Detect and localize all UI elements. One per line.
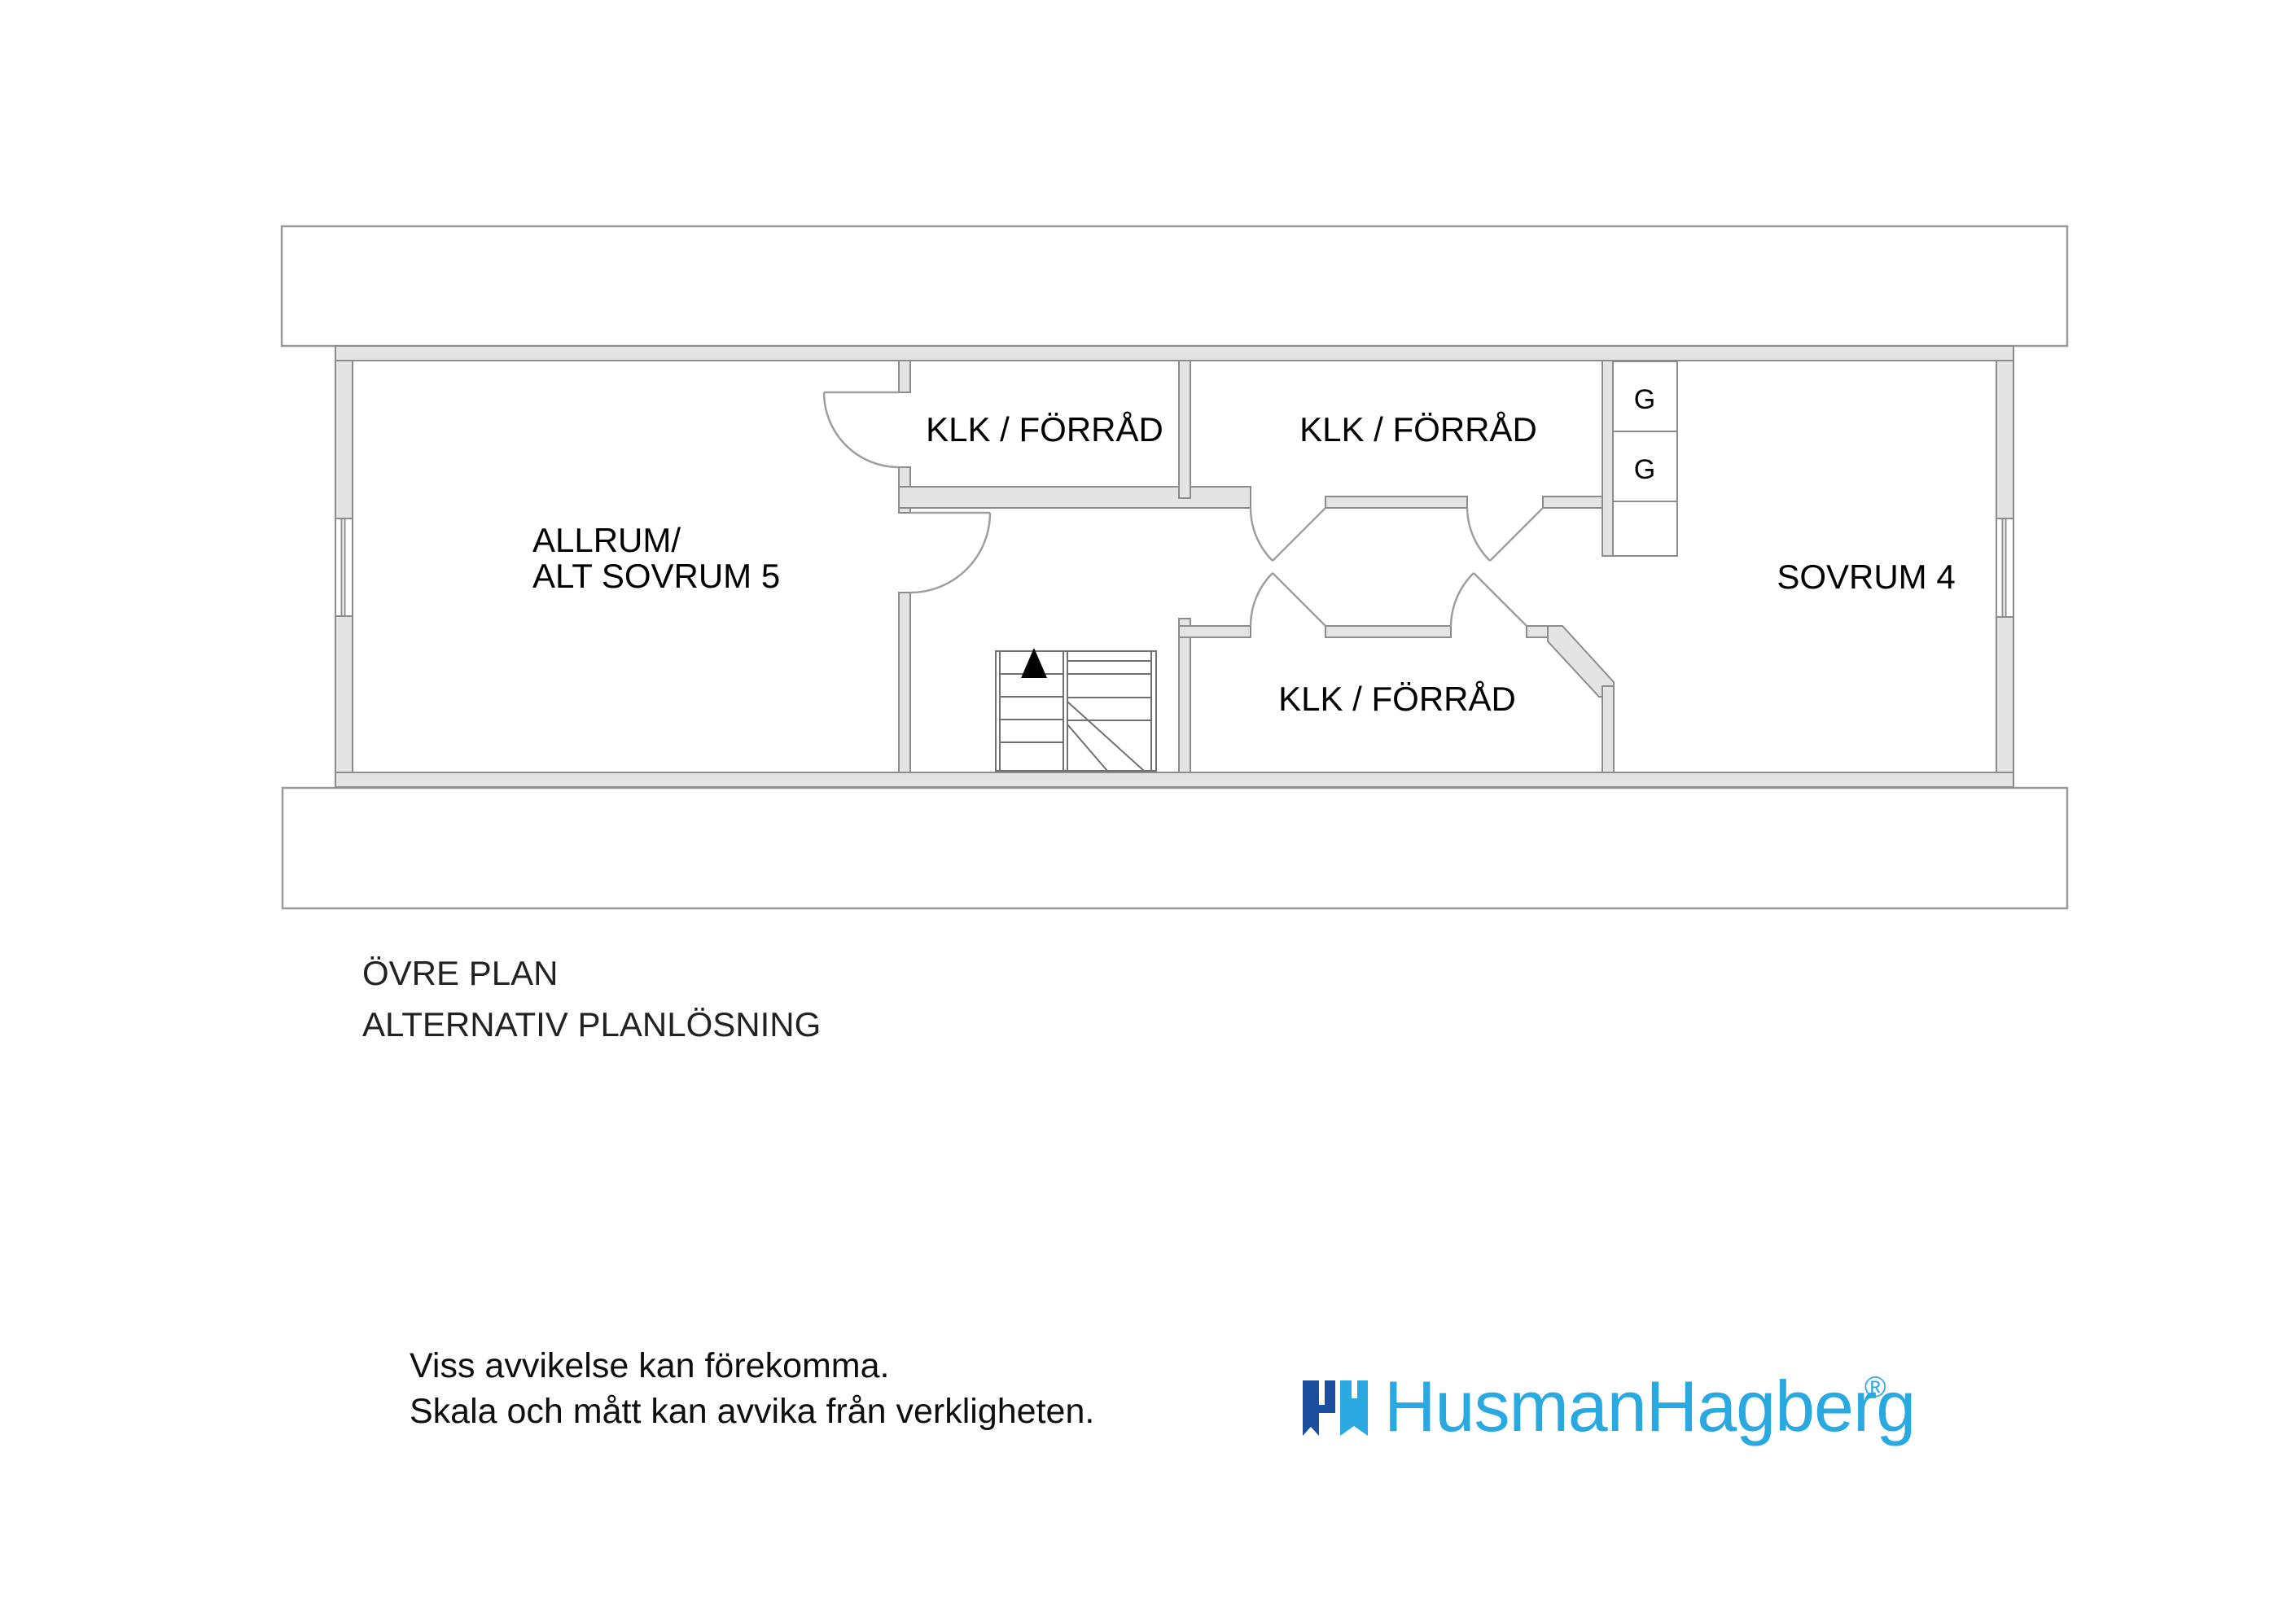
wall-corridor-south-west xyxy=(1179,626,1251,637)
stairs xyxy=(996,648,1156,771)
brand-logo: HusmanHagberg ® xyxy=(1303,1366,1915,1446)
wall-exterior-right-lower xyxy=(1996,617,2013,772)
wall-hall-north xyxy=(899,487,1251,508)
room-labels: ALLRUM/ ALT SOVRUM 5 KLK / FÖRRÅD KLK / … xyxy=(532,410,1956,718)
logo-mark-dark-tooth xyxy=(1319,1380,1335,1413)
door-corridor-north-east-symbol xyxy=(1467,508,1543,561)
wall-allrum-divider-bottom xyxy=(899,593,910,772)
wardrobes: G G xyxy=(1613,361,1677,556)
door-corridor-north-west-symbol xyxy=(1251,508,1325,561)
room-label-sovrum4: SOVRUM 4 xyxy=(1777,558,1955,596)
wardrobe-label: G xyxy=(1634,384,1655,415)
layout-variant-caption: ALTERNATIV PLANLÖSNING xyxy=(362,1005,821,1043)
floor-caption: ÖVRE PLAN xyxy=(362,954,558,992)
room-label-klk-top-right: KLK / FÖRRÅD xyxy=(1299,410,1537,448)
wardrobe-label: G xyxy=(1634,454,1655,485)
logo-mark-light-shape xyxy=(1340,1380,1368,1436)
logo-registered-icon: ® xyxy=(1864,1370,1886,1403)
window-left xyxy=(335,518,353,616)
wall-klk-split xyxy=(1179,361,1190,498)
door-allrum-hall-symbol xyxy=(910,513,990,593)
wall-hall-east xyxy=(1179,619,1190,772)
logo-text: HusmanHagberg xyxy=(1384,1366,1915,1446)
roof-band-top xyxy=(282,226,2067,346)
logo-mark-dark-shape xyxy=(1303,1380,1319,1436)
door-corridor-south-west-symbol xyxy=(1251,573,1325,626)
logo-mark-icon xyxy=(1303,1380,1368,1436)
window-right xyxy=(1996,518,2013,617)
wall-sovrum-divider-lower xyxy=(1602,686,1614,772)
room-label-klk-bottom: KLK / FÖRRÅD xyxy=(1278,680,1516,718)
floorplan-canvas: G G ALLRUM/ ALT SOVRUM 5 KLK / FÖRRÅD KL… xyxy=(0,0,2296,1623)
wall-corridor-south-mid xyxy=(1325,626,1451,637)
wall-exterior-right-upper xyxy=(1996,361,2013,518)
disclaimer-line1: Viss avvikelse kan förekomma. xyxy=(410,1346,890,1385)
wardrobe-box xyxy=(1613,501,1677,556)
door-klk-top-left-symbol xyxy=(824,392,899,467)
room-label-allrum-line2: ALT SOVRUM 5 xyxy=(532,557,780,595)
wall-exterior-left-upper xyxy=(335,361,353,518)
roof-band-bottom xyxy=(283,788,2067,908)
stairs-outline xyxy=(996,651,1156,771)
wall-exterior-left-lower xyxy=(335,616,353,772)
disclaimer-line2: Skala och mått kan avvika från verklighe… xyxy=(410,1392,1094,1431)
room-label-allrum-line1: ALLRUM/ xyxy=(532,521,681,559)
wall-allrum-divider-top xyxy=(899,361,910,392)
room-label-klk-top-left: KLK / FÖRRÅD xyxy=(926,410,1163,448)
door-corridor-south-east-symbol xyxy=(1451,573,1527,626)
wall-exterior-top xyxy=(335,346,2013,361)
wall-sovrum-divider-upper xyxy=(1602,361,1613,556)
wall-corridor-north-east xyxy=(1543,497,1602,508)
wall-exterior-bottom xyxy=(335,772,2013,787)
wall-corridor-north-mid xyxy=(1325,497,1467,508)
